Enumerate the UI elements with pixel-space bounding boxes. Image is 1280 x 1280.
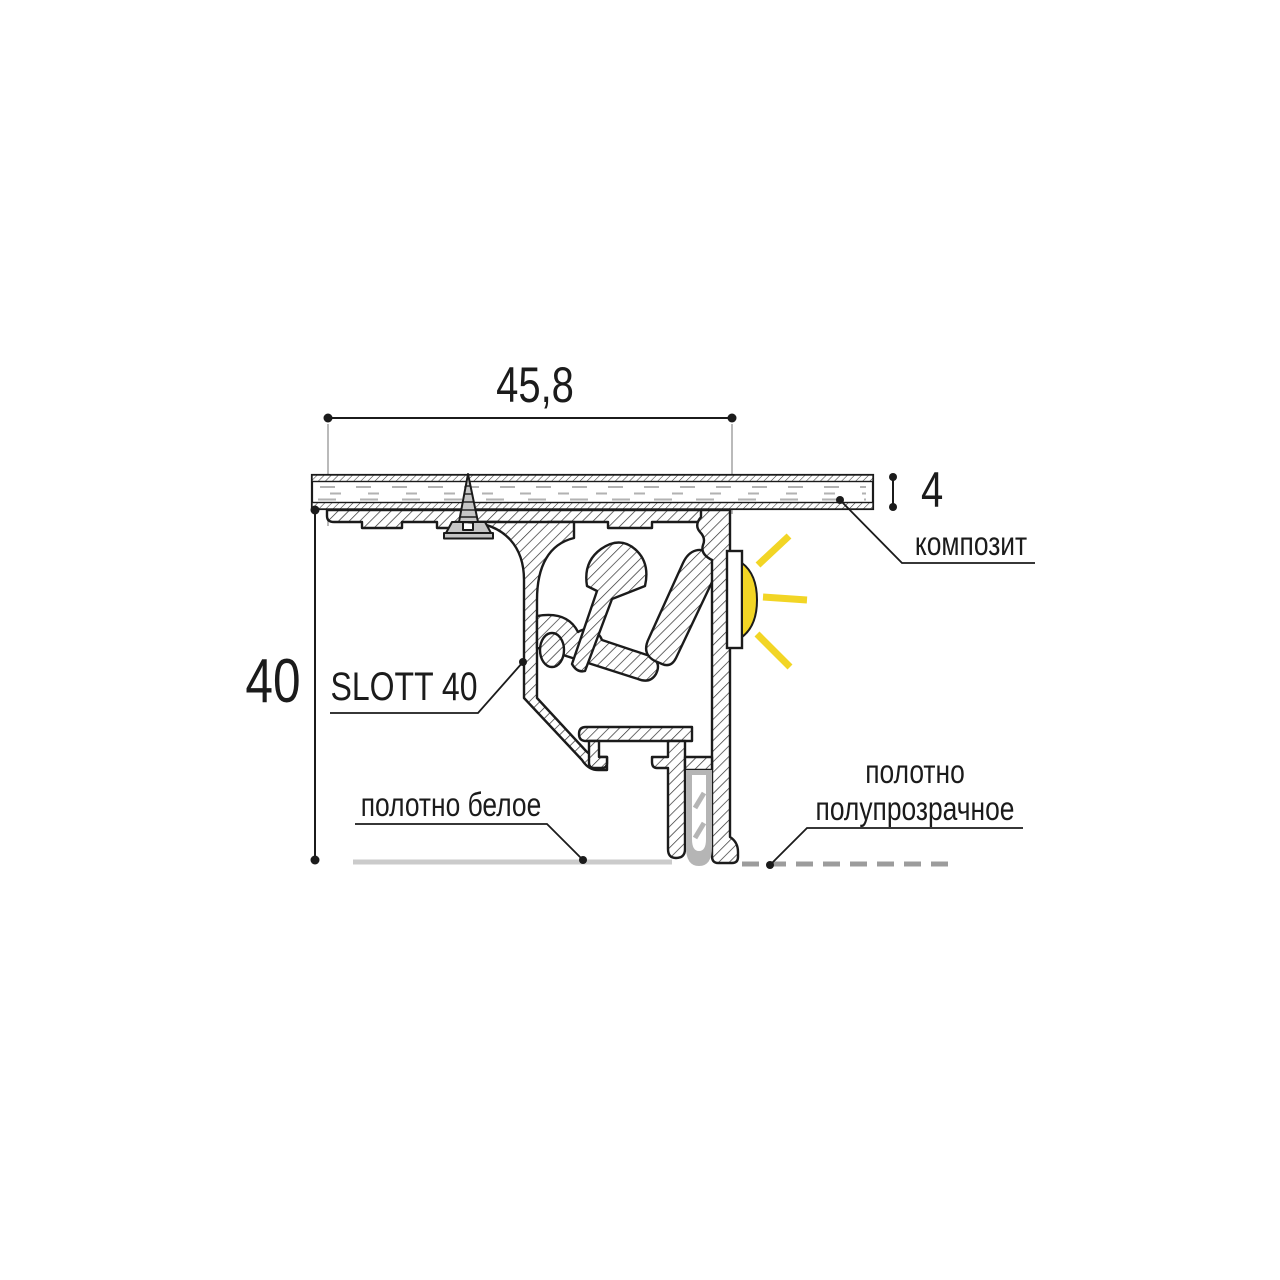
screw-head-base xyxy=(444,533,493,539)
profile-bottom-bar xyxy=(579,727,692,741)
label-profile-text: SLOTT 40 xyxy=(330,664,477,709)
dimension-dot xyxy=(324,414,333,423)
led-light-icon xyxy=(757,536,807,667)
dimension-width-value: 45,8 xyxy=(496,357,574,413)
leader-dot xyxy=(766,861,774,869)
harpoon-gasket xyxy=(686,770,712,866)
profile-gasket-channel-leg xyxy=(652,741,685,858)
dimension-thickness: 4 xyxy=(889,462,943,518)
label-composite-text: композит xyxy=(915,526,1028,562)
composite-panel-bottom-skin xyxy=(312,503,873,510)
label-translucent-text-line2: полупрозрачное xyxy=(816,791,1015,827)
gasket-slot xyxy=(692,775,706,851)
profile-bottom-connector xyxy=(685,757,712,770)
profile-inner-slant-wall xyxy=(646,550,713,665)
slott40-technical-diagram: 45,8 40 4 композит SLOTT 40 полотно бело… xyxy=(0,0,1280,1280)
composite-panel xyxy=(312,475,873,509)
profile-clip-knob xyxy=(540,633,564,667)
composite-panel-top-skin xyxy=(312,475,873,482)
dimension-height: 40 xyxy=(245,506,319,865)
label-white-fabric: полотно белое xyxy=(355,787,587,864)
leader-dot xyxy=(579,856,587,864)
label-white-fabric-text: полотно белое xyxy=(361,787,542,823)
label-white-fabric-leader xyxy=(355,824,583,860)
led-lens-dome xyxy=(742,563,757,637)
led-module xyxy=(727,536,807,667)
dimension-dot xyxy=(728,414,737,423)
leader-dot xyxy=(519,658,527,666)
dimension-width: 45,8 xyxy=(324,357,737,423)
screw-head xyxy=(446,522,491,533)
label-translucent-fabric: полотно полупрозрачное xyxy=(766,754,1023,869)
dimension-dot xyxy=(889,473,897,481)
profile-bottom-left-leg xyxy=(589,741,607,768)
leader-dot xyxy=(836,496,844,504)
led-strip-base xyxy=(727,551,742,648)
dimension-dot xyxy=(311,856,320,865)
dimension-height-value: 40 xyxy=(245,646,300,716)
profile-cross-section-page: 45,8 40 4 композит SLOTT 40 полотно бело… xyxy=(0,0,1280,1280)
label-translucent-leader xyxy=(770,828,1023,865)
dimension-dot xyxy=(889,503,897,511)
dimension-dot xyxy=(311,506,320,515)
dimension-thickness-value: 4 xyxy=(921,462,943,518)
label-translucent-text-line1: полотно xyxy=(865,754,965,790)
label-profile-name: SLOTT 40 xyxy=(330,658,527,713)
